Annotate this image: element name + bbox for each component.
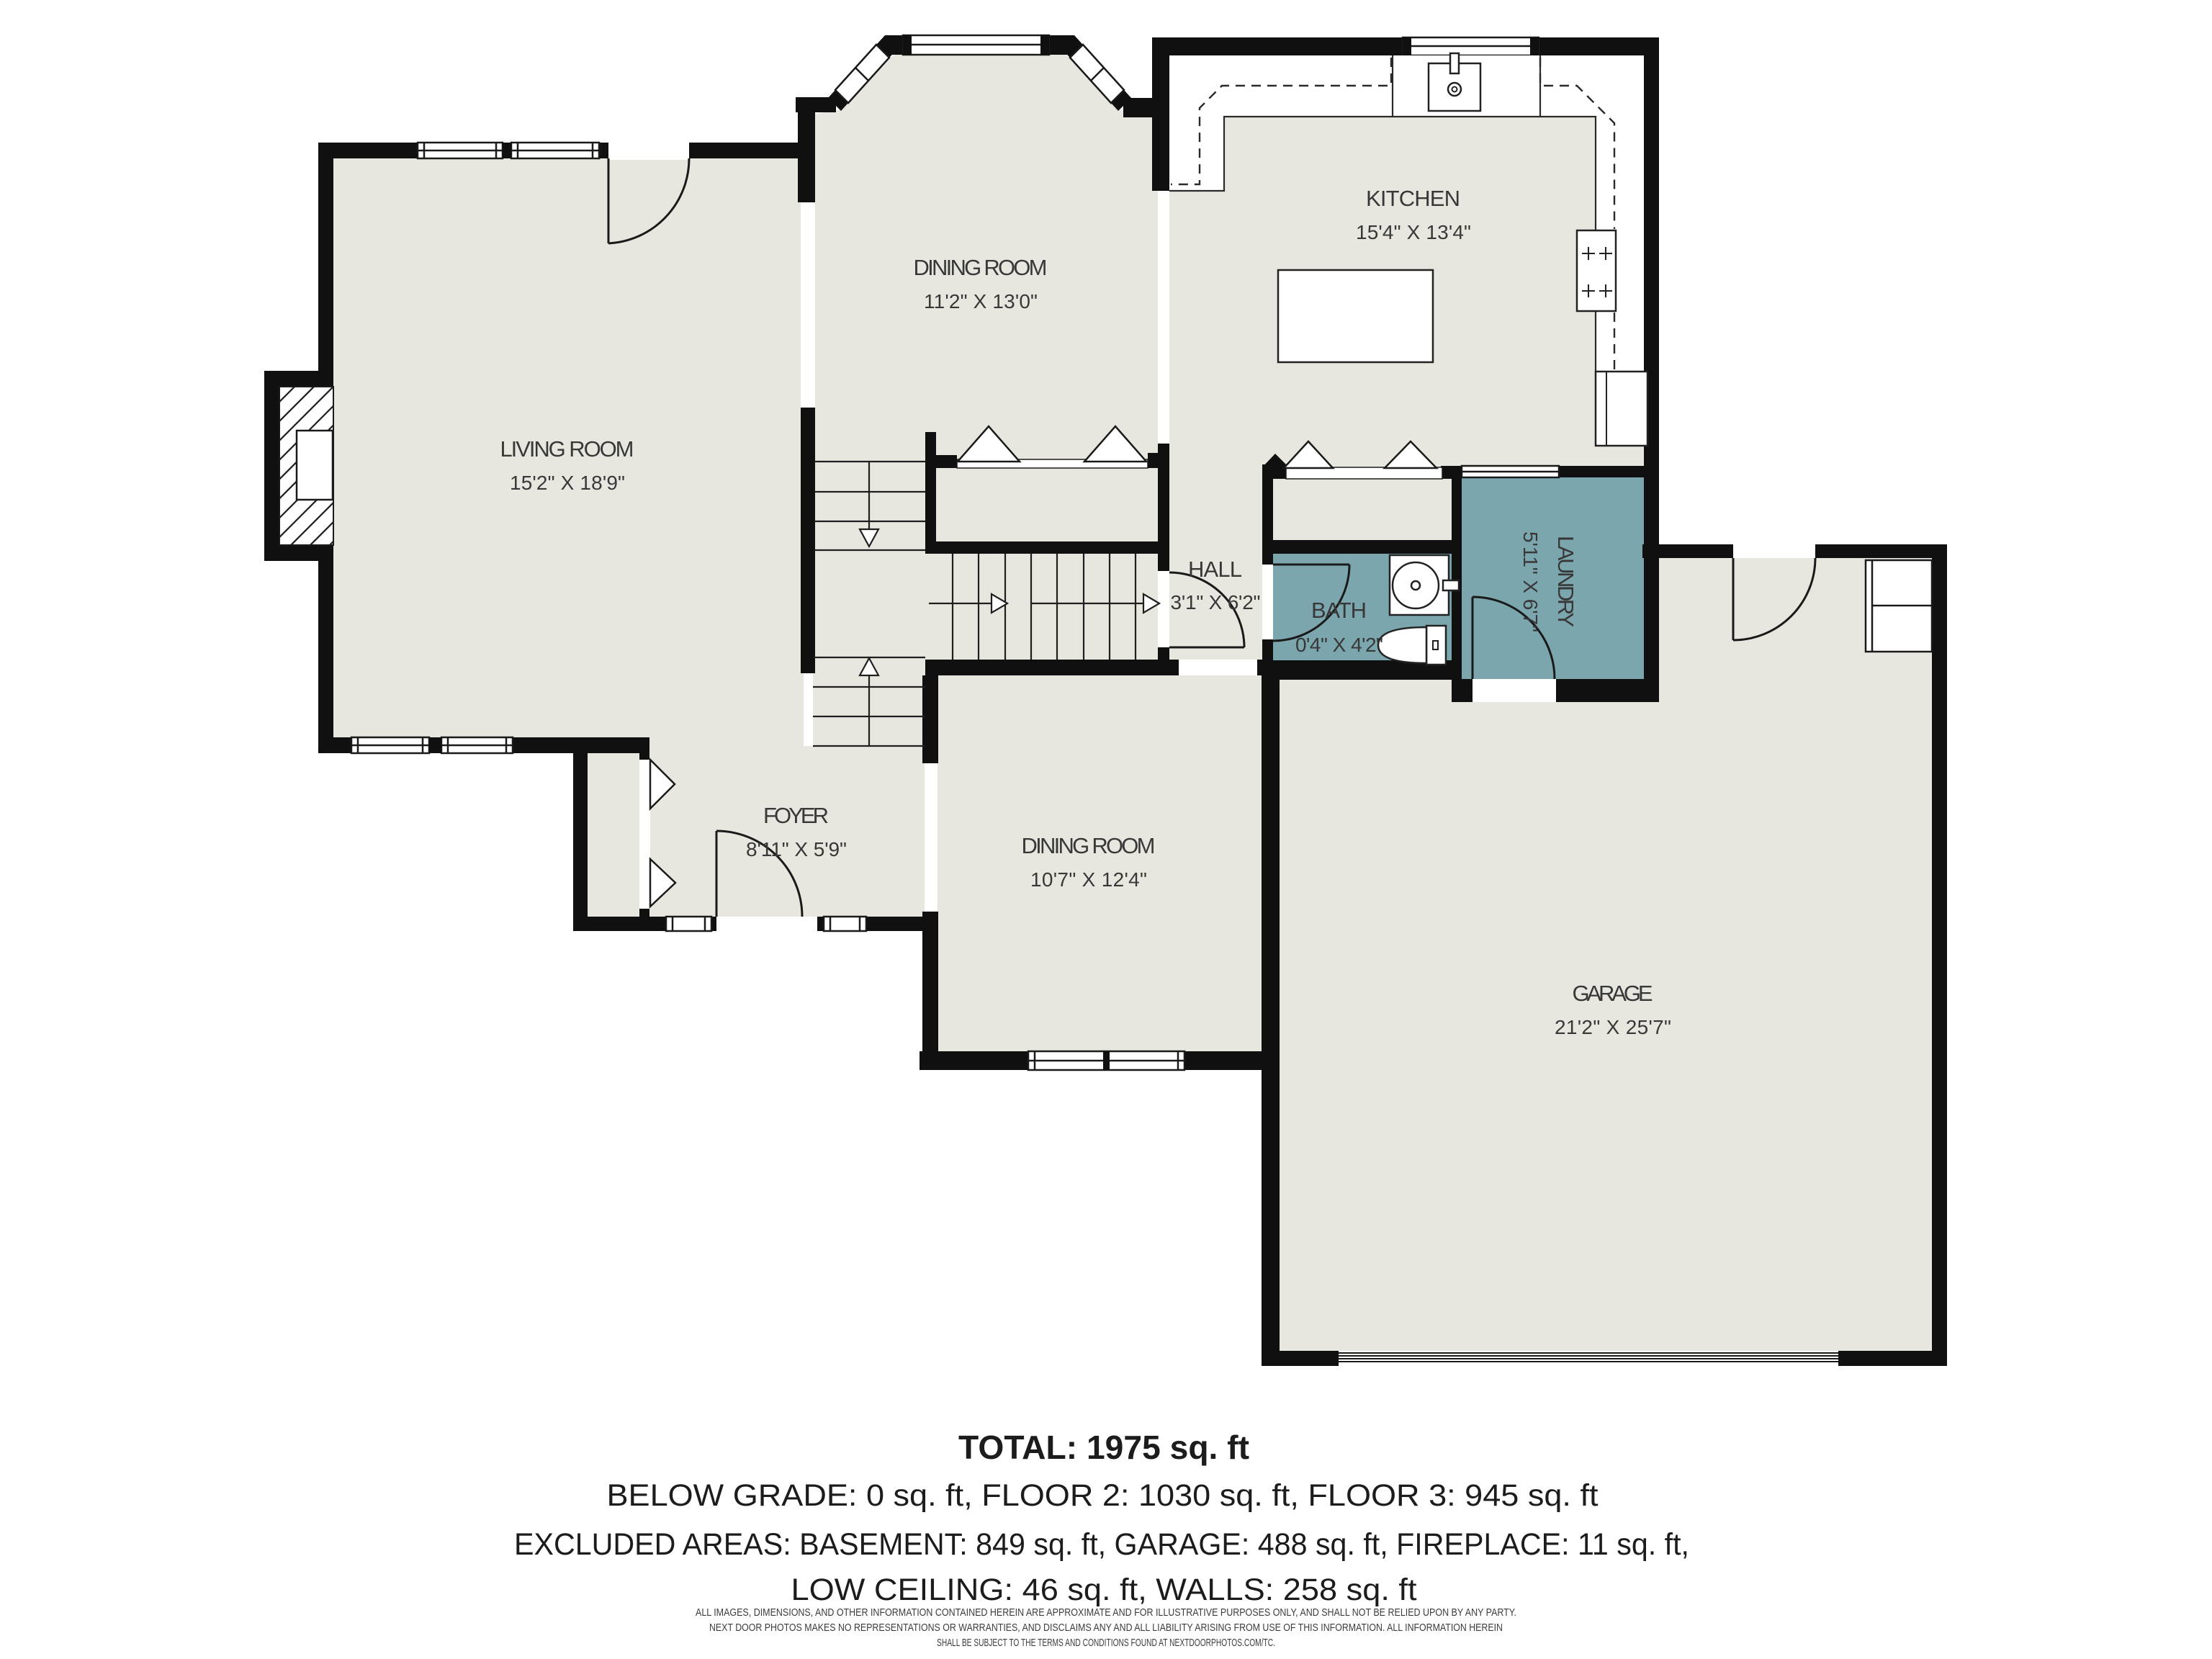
svg-text:HALL: HALL xyxy=(1188,557,1243,582)
svg-text:5'11" X 6'7": 5'11" X 6'7" xyxy=(1519,531,1542,632)
svg-text:DINING ROOM: DINING ROOM xyxy=(914,255,1048,280)
svg-text:10'7" X 12'4": 10'7" X 12'4" xyxy=(1030,868,1147,891)
svg-text:3'1" X 6'2": 3'1" X 6'2" xyxy=(1171,591,1261,613)
svg-text:LAUNDRY: LAUNDRY xyxy=(1553,536,1578,628)
svg-text:NEXT DOOR PHOTOS MAKES NO REPR: NEXT DOOR PHOTOS MAKES NO REPRESENTATION… xyxy=(709,1622,1503,1634)
svg-text:TOTAL: 1975 sq. ft: TOTAL: 1975 sq. ft xyxy=(958,1429,1249,1466)
svg-text:LIVING ROOM: LIVING ROOM xyxy=(500,436,635,462)
svg-text:LOW CEILING: 46 sq. ft, WALLS:: LOW CEILING: 46 sq. ft, WALLS: 258 sq. f… xyxy=(791,1573,1417,1607)
svg-text:21'2" X 25'7": 21'2" X 25'7" xyxy=(1555,1016,1671,1038)
svg-text:FOYER: FOYER xyxy=(763,803,829,828)
svg-text:SHALL BE SUBJECT TO THE TERMS: SHALL BE SUBJECT TO THE TERMS AND CONDIT… xyxy=(937,1637,1275,1649)
svg-text:15'4" X 13'4": 15'4" X 13'4" xyxy=(1356,221,1471,243)
svg-text:8'11" X 5'9": 8'11" X 5'9" xyxy=(746,838,847,860)
svg-text:EXCLUDED AREAS: BASEMENT: 849: EXCLUDED AREAS: BASEMENT: 849 sq. ft, GA… xyxy=(514,1527,1689,1562)
svg-text:KITCHEN: KITCHEN xyxy=(1366,186,1461,211)
svg-text:GARAGE: GARAGE xyxy=(1573,981,1654,1006)
svg-text:DINING ROOM: DINING ROOM xyxy=(1022,833,1156,858)
svg-text:ALL IMAGES, DIMENSIONS, AND OT: ALL IMAGES, DIMENSIONS, AND OTHER INFORM… xyxy=(696,1607,1516,1619)
svg-text:BATH: BATH xyxy=(1311,598,1367,623)
svg-text:BELOW GRADE: 0 sq. ft, FLOOR 2: BELOW GRADE: 0 sq. ft, FLOOR 2: 1030 sq.… xyxy=(607,1478,1599,1513)
svg-text:15'2" X 18'9": 15'2" X 18'9" xyxy=(510,472,625,494)
svg-text:11'2" X 13'0": 11'2" X 13'0" xyxy=(924,290,1038,313)
svg-text:0'4" X 4'2": 0'4" X 4'2" xyxy=(1295,634,1383,656)
